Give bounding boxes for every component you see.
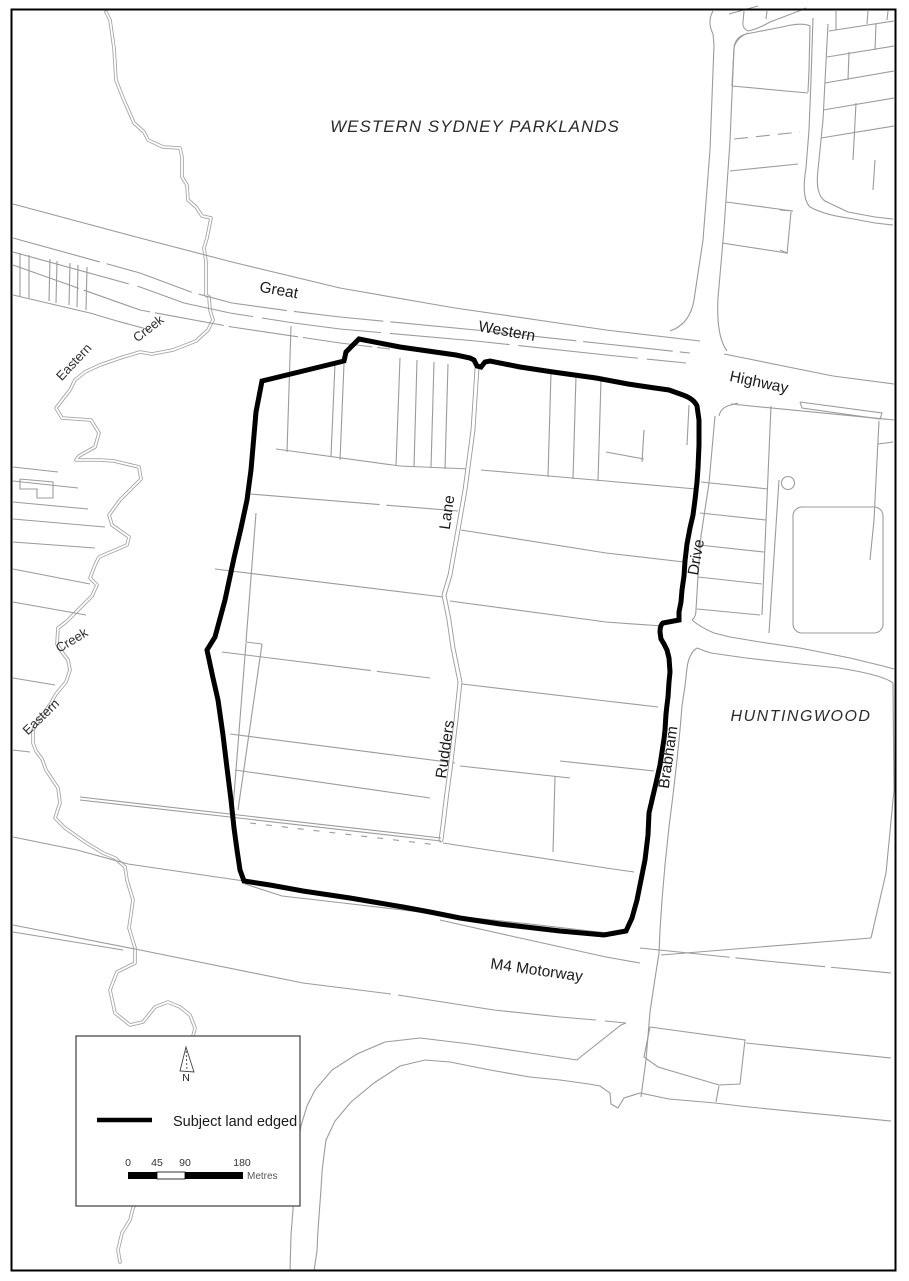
svg-text:Metres: Metres bbox=[247, 1171, 278, 1182]
svg-text:HUNTINGWOOD: HUNTINGWOOD bbox=[731, 708, 872, 725]
svg-text:WESTERN SYDNEY PARKLANDS: WESTERN SYDNEY PARKLANDS bbox=[330, 117, 620, 136]
svg-text:Subject land edged: Subject land edged bbox=[173, 1114, 297, 1130]
svg-text:180: 180 bbox=[233, 1157, 251, 1169]
svg-text:45: 45 bbox=[151, 1157, 163, 1169]
svg-text:N: N bbox=[182, 1072, 190, 1084]
svg-text:90: 90 bbox=[179, 1157, 191, 1169]
svg-text:0: 0 bbox=[125, 1157, 131, 1169]
